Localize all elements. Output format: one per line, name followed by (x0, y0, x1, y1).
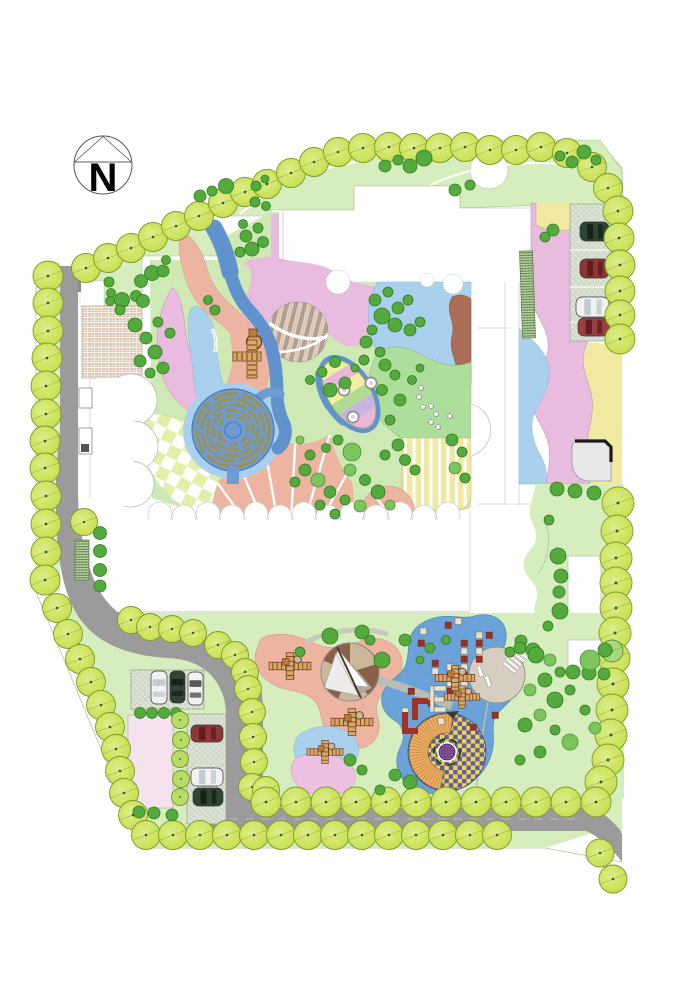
svg-text:N: N (89, 156, 118, 200)
